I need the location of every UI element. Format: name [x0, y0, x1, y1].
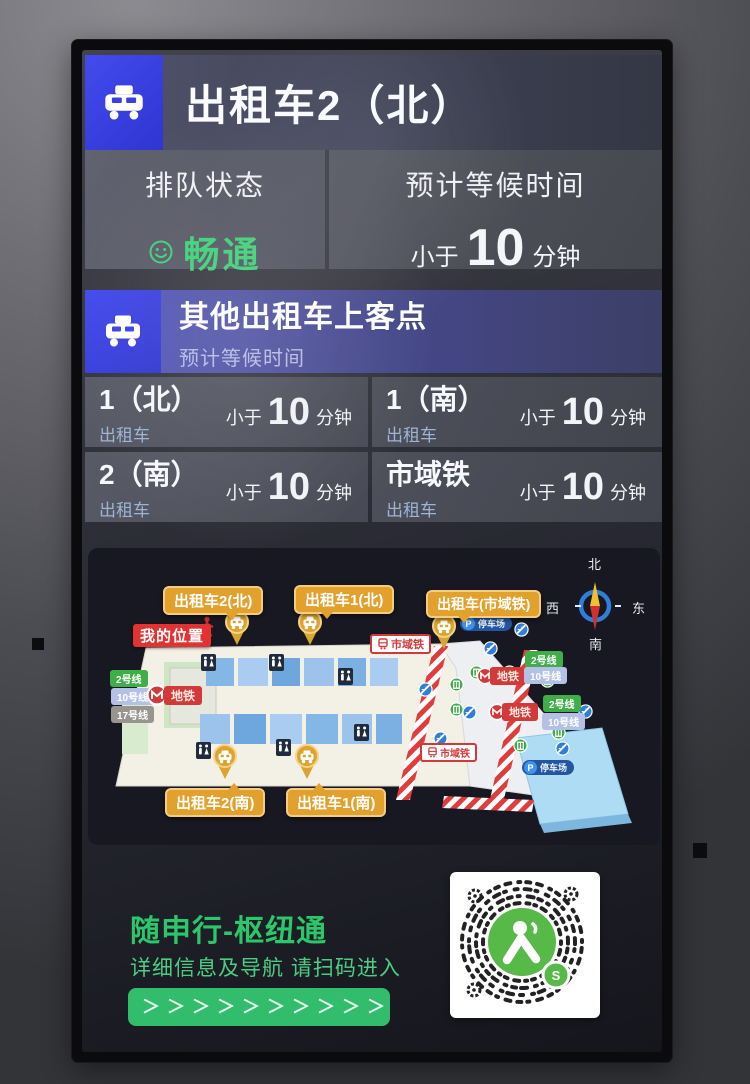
tile-category: 出租车: [99, 496, 199, 521]
my-location-badge: 我的位置: [133, 624, 211, 647]
wait-number: 10: [562, 391, 604, 434]
queue-status-label: 排队状态: [145, 164, 265, 204]
pickup-tile-1-north[interactable]: 1（北） 出租车 小于 10 分钟: [85, 377, 368, 447]
tile-wait: 小于 10 分钟: [226, 466, 352, 509]
taxi-icon-tile: [85, 55, 163, 150]
taxi-pin-2-south: [212, 744, 238, 780]
tile-category: 出租车: [99, 421, 199, 446]
wait-time-label: 预计等候时间: [405, 164, 585, 204]
wait-prefix: 小于: [411, 237, 459, 272]
suburban-rail-label: 市域铁: [440, 745, 470, 760]
line-10-pill: 10号线: [524, 667, 567, 684]
taxi-icon-tile-small: [85, 290, 161, 373]
qr-code-graphic: S: [450, 872, 600, 1018]
parking-label: 停车场: [540, 761, 567, 774]
tile-name: 2（南）: [99, 453, 199, 493]
wall-screw-left: [32, 638, 44, 650]
taxi-pin-1-north: [297, 610, 323, 646]
map-label-taxi-suburban: 出租车(市域铁): [426, 590, 541, 618]
metro-label: 地铁: [164, 686, 202, 705]
map-label-taxi2-south: 出租车2(南): [165, 788, 265, 817]
kiosk-screen: 出租车2（北） 排队状态 畅通 预计等候时间 小于 10 分钟: [72, 40, 672, 1062]
pickup-tile-1-south[interactable]: 1（南） 出租车 小于 10 分钟: [372, 377, 662, 447]
compass-north-label: 北: [588, 554, 601, 573]
wait-prefix: 小于: [226, 404, 262, 430]
tile-wait: 小于 10 分钟: [520, 466, 646, 509]
taxi-icon: [102, 85, 146, 121]
other-points-header: 其他出租车上客点 预计等候时间: [85, 290, 662, 373]
qr-code: S: [450, 872, 600, 1018]
wait-prefix: 小于: [520, 479, 556, 505]
tile-name: 1（北）: [99, 378, 199, 418]
svg-text:S: S: [552, 968, 561, 983]
taxi-icon: [103, 315, 143, 348]
metro-badge-left: 地铁: [146, 684, 202, 706]
kiosk-photo: 出租车2（北） 排队状态 畅通 预计等候时间 小于 10 分钟: [0, 0, 750, 1084]
pickup-tile-suburban-rail[interactable]: 市域铁 出租车 小于 10 分钟: [372, 452, 662, 522]
suburban-rail-badge: 市域铁: [420, 743, 477, 762]
wait-unit: 分钟: [316, 479, 352, 505]
line-2-pill: 2号线: [543, 695, 581, 712]
metro-badge-right-2: 地铁: [488, 703, 538, 721]
queue-status-value: 畅通: [183, 226, 261, 278]
page-title: 出租车2（北）: [185, 72, 474, 133]
parking-label: 停车场: [478, 617, 505, 630]
wait-number: 10: [467, 218, 525, 278]
wait-unit: 分钟: [610, 479, 646, 505]
wait-time-cell: 预计等候时间 小于 10 分钟: [329, 150, 662, 269]
map-label-taxi1-south: 出租车1(南): [286, 788, 386, 817]
wait-number: 10: [268, 391, 310, 434]
line-2-pill: 2号线: [525, 651, 563, 668]
compass-west-label: 西: [546, 598, 559, 617]
taxi-pin-suburban: [431, 614, 457, 650]
taxi-pin-1-south: [294, 744, 320, 780]
compass-east-label: 东: [632, 598, 645, 617]
footer-subtitle: 详细信息及导航 请扫码进入: [130, 952, 401, 982]
wait-prefix: 小于: [520, 404, 556, 430]
map-label-taxi1-north: 出租车1(北): [294, 585, 394, 614]
wait-unit: 分钟: [610, 404, 646, 430]
tile-category: 出租车: [386, 421, 486, 446]
chevron-bar: ＞＞＞＞＞＞＞＞＞＞: [128, 988, 390, 1026]
parking-icon: P: [524, 761, 537, 774]
other-points-subtitle: 预计等候时间: [179, 342, 427, 371]
tile-name: 1（南）: [386, 378, 486, 418]
line-10-pill: 10号线: [542, 713, 585, 730]
queue-status-cell: 排队状态 畅通: [85, 150, 325, 269]
metro-badge-right-1: 地铁: [476, 667, 526, 685]
station-map: 出租车2(北) 出租车1(北) 出租车(市域铁) 出租车2(南) 出租车1(南)…: [88, 548, 660, 845]
metro-label: 地铁: [490, 667, 526, 685]
wait-prefix: 小于: [226, 479, 262, 505]
tile-name: 市域铁: [386, 453, 470, 493]
wait-number: 10: [268, 466, 310, 509]
map-label-taxi2-north: 出租车2(北): [163, 586, 263, 615]
train-icon: [377, 638, 389, 650]
suburban-rail-label: 市域铁: [391, 636, 424, 652]
wait-time-value: 小于 10 分钟: [411, 218, 581, 278]
smiley-icon: [148, 239, 174, 265]
compass-icon: [575, 582, 621, 630]
wait-number: 10: [562, 466, 604, 509]
line-2-pill: 2号线: [110, 670, 148, 687]
metro-label: 地铁: [502, 703, 538, 721]
pickup-tile-2-south[interactable]: 2（南） 出租车 小于 10 分钟: [85, 452, 368, 522]
tile-wait: 小于 10 分钟: [226, 391, 352, 434]
tile-category: 出租车: [386, 496, 470, 521]
wait-unit: 分钟: [316, 404, 352, 430]
compass-south-label: 南: [589, 634, 602, 653]
other-points-title: 其他出租车上客点: [179, 292, 427, 336]
main-header: 出租车2（北）: [85, 55, 662, 150]
parking-badge: P 停车场: [522, 760, 574, 775]
wait-unit: 分钟: [532, 237, 580, 272]
line-17-pill: 17号线: [111, 706, 154, 723]
tile-wait: 小于 10 分钟: [520, 391, 646, 434]
wall-screw-right: [693, 843, 707, 858]
suburban-rail-badge: 市域铁: [370, 634, 431, 654]
footer-title: 随申行-枢纽通: [130, 906, 327, 950]
train-icon: [427, 747, 438, 758]
